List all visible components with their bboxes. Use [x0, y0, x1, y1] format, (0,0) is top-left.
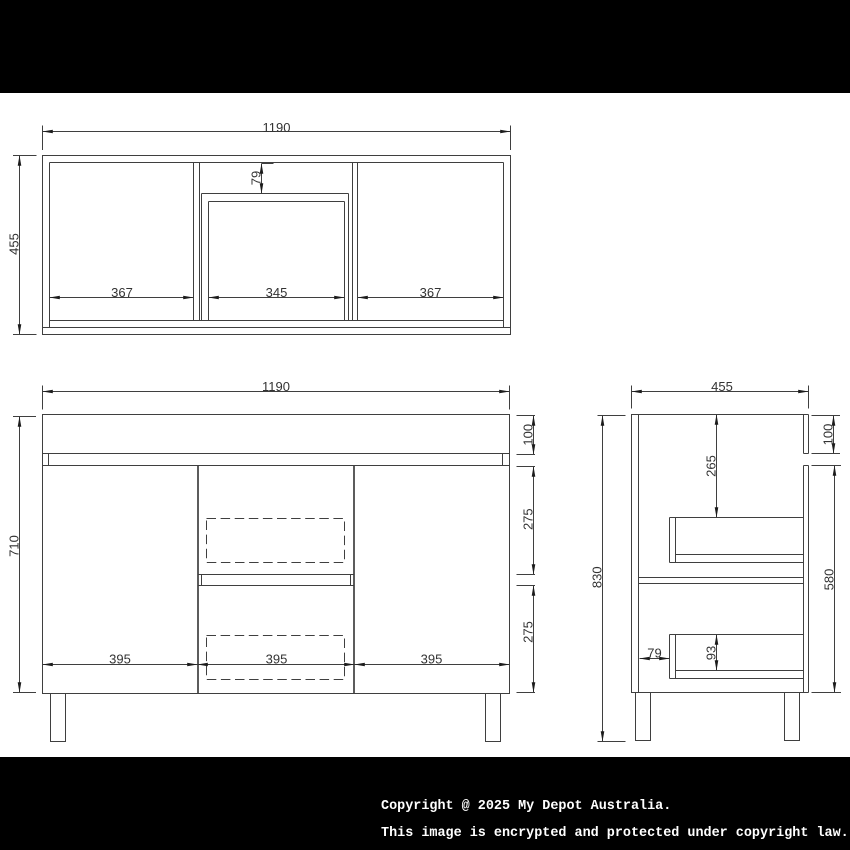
- svg-text:1190: 1190: [263, 120, 291, 135]
- svg-text:100: 100: [521, 424, 536, 446]
- svg-text:1190: 1190: [262, 379, 290, 394]
- svg-text:275: 275: [521, 508, 536, 530]
- svg-text:265: 265: [704, 455, 719, 477]
- svg-text:580: 580: [822, 569, 837, 591]
- svg-text:93: 93: [704, 646, 719, 660]
- svg-text:395: 395: [109, 652, 131, 667]
- svg-text:395: 395: [421, 652, 443, 667]
- svg-text:710: 710: [7, 535, 22, 557]
- svg-text:345: 345: [266, 285, 288, 300]
- svg-text:79: 79: [249, 171, 264, 185]
- svg-text:275: 275: [521, 621, 536, 643]
- svg-text:455: 455: [7, 233, 22, 255]
- svg-text:100: 100: [821, 424, 836, 446]
- svg-text:79: 79: [647, 646, 661, 661]
- svg-text:830: 830: [590, 566, 605, 588]
- svg-text:455: 455: [711, 379, 733, 394]
- svg-text:367: 367: [420, 285, 442, 300]
- svg-text:395: 395: [266, 652, 288, 667]
- svg-text:367: 367: [111, 285, 133, 300]
